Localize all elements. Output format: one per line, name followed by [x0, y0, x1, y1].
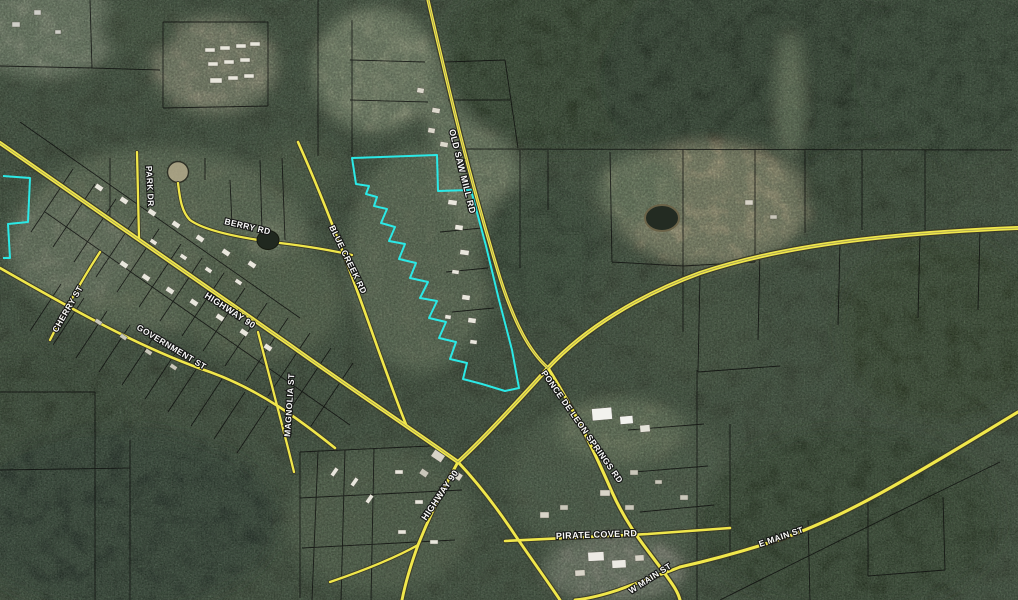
building-footprint [540, 512, 549, 518]
building-footprint [745, 200, 753, 205]
building-footprint [625, 505, 634, 510]
building-footprint [455, 224, 464, 230]
building-footprint [462, 294, 471, 300]
building-footprint [428, 127, 436, 133]
building-footprint [630, 470, 638, 475]
building-footprint [600, 490, 610, 496]
building-footprint [612, 560, 626, 569]
building-footprint [640, 425, 651, 433]
building-footprint [224, 60, 234, 64]
map-canvas[interactable]: OLD SAW MILL RD PARK DR BERRY RD CHERRY … [0, 0, 1018, 600]
building-footprint [470, 340, 477, 345]
building-footprint [448, 199, 458, 205]
building-footprint [205, 48, 215, 52]
map-viewport[interactable]: OLD SAW MILL RD PARK DR BERRY RD CHERRY … [0, 0, 1018, 600]
building-footprint [468, 317, 477, 323]
building-footprint [592, 407, 613, 421]
building-footprint [236, 44, 246, 48]
road-label-park-dr: PARK DR [144, 166, 156, 207]
building-footprint [210, 78, 222, 83]
building-footprint [34, 10, 41, 15]
building-footprint [588, 552, 604, 562]
building-footprint [452, 270, 459, 275]
building-footprint [55, 30, 61, 34]
building-footprint [220, 46, 230, 50]
building-footprint [244, 74, 254, 78]
building-footprint [398, 530, 406, 534]
building-footprint [620, 415, 634, 424]
building-footprint [575, 570, 585, 577]
building-footprint [250, 42, 260, 46]
building-footprint [770, 215, 777, 219]
building-footprint [460, 249, 470, 255]
building-footprint [417, 87, 425, 93]
building-footprint [445, 315, 451, 320]
building-footprint [560, 505, 568, 510]
building-footprint [228, 76, 238, 80]
pond [645, 205, 679, 231]
building-footprint [395, 470, 403, 474]
building-footprint [655, 480, 662, 484]
building-footprint [635, 555, 644, 561]
building-footprint [430, 540, 438, 544]
building-footprint [680, 495, 688, 500]
building-footprint [415, 500, 423, 504]
building-footprint [208, 62, 218, 66]
building-footprint [12, 22, 20, 27]
building-footprint [240, 58, 250, 62]
